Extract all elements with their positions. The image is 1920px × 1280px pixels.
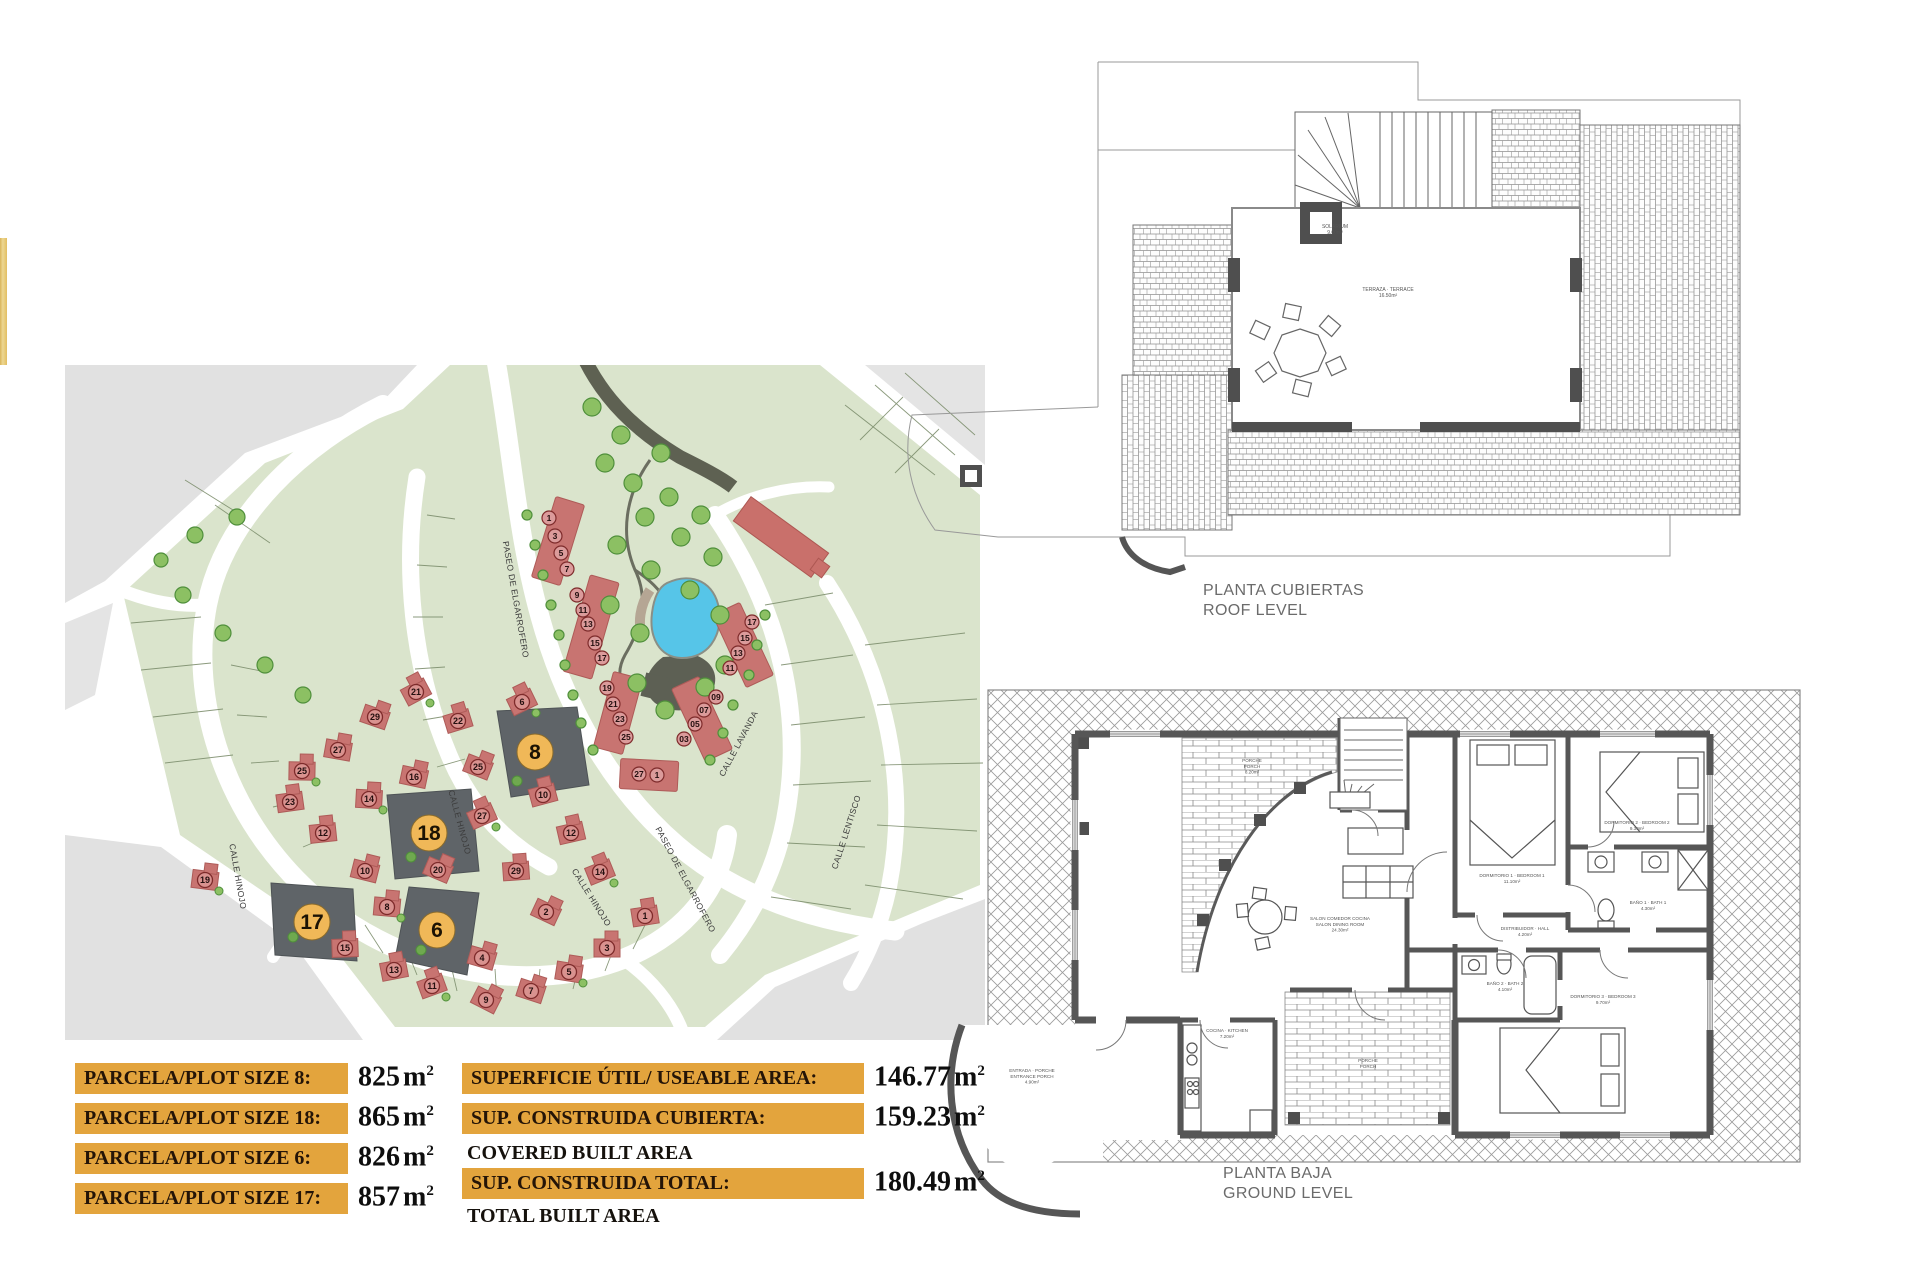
built-area-table: SUPERFICIE ÚTIL/ USEABLE AREA:146.77m2SU… xyxy=(462,1063,1022,1233)
plot-number: 12 xyxy=(566,828,576,838)
tree-icon xyxy=(492,823,500,831)
tree-icon xyxy=(705,755,715,765)
row-label: PARCELA/PLOT SIZE 6: xyxy=(84,1147,311,1170)
tree-icon xyxy=(692,506,710,524)
tree-icon xyxy=(522,510,532,520)
tree-icon xyxy=(560,660,570,670)
row-label-bar: PARCELA/PLOT SIZE 18: xyxy=(75,1103,348,1134)
tree-icon xyxy=(744,670,754,680)
tree-icon xyxy=(628,674,646,692)
tree-icon xyxy=(624,474,642,492)
unit-number: 05 xyxy=(690,719,700,729)
tree-icon xyxy=(718,728,728,738)
plot-number: 22 xyxy=(453,716,463,726)
tree-icon xyxy=(672,528,690,546)
tree-icon xyxy=(681,581,699,599)
tree-icon xyxy=(752,640,762,650)
row-value: 826m2 xyxy=(358,1141,434,1173)
tree-icon xyxy=(538,570,548,580)
tree-icon xyxy=(442,993,450,1001)
unit-number: 25 xyxy=(621,732,631,742)
plot-size-row: PARCELA/PLOT SIZE 17:857m2 xyxy=(75,1183,465,1214)
tree-icon xyxy=(608,536,626,554)
plot-number: 25 xyxy=(297,766,307,776)
area-row-subtitle: TOTAL BUILT AREA xyxy=(467,1205,660,1228)
tree-icon xyxy=(257,657,273,673)
tree-icon xyxy=(568,690,578,700)
tree-icon xyxy=(229,509,245,525)
unit-number: 13 xyxy=(583,619,593,629)
tree-icon xyxy=(554,630,564,640)
plot-number: 3 xyxy=(604,943,609,953)
plot-number: 27 xyxy=(333,745,343,755)
row-label-bar: SUPERFICIE ÚTIL/ USEABLE AREA: xyxy=(462,1063,864,1094)
plot-size-row: PARCELA/PLOT SIZE 8:825m2 xyxy=(75,1063,465,1094)
tree-icon xyxy=(295,687,311,703)
tree-icon xyxy=(397,914,405,922)
unit-number: 21 xyxy=(608,699,618,709)
roof-plan-title-es: PLANTA CUBIERTAS xyxy=(1203,581,1364,601)
plot-number: 29 xyxy=(511,866,521,876)
plot-number: 16 xyxy=(409,772,419,782)
highlighted-plot-number: 8 xyxy=(529,741,541,764)
plot-number: 27 xyxy=(477,811,487,821)
plot-number: 23 xyxy=(285,797,295,807)
tree-icon xyxy=(215,887,223,895)
tree-icon xyxy=(215,625,231,641)
tree-icon xyxy=(704,548,722,566)
tree-icon xyxy=(583,398,601,416)
roof-entrance-canopy xyxy=(1122,537,1185,572)
plot-number: 1 xyxy=(642,911,647,921)
tree-icon xyxy=(187,527,203,543)
unit-number: 3 xyxy=(553,531,558,541)
plan-sheet-page: 2129272523226251614121027201082912142419… xyxy=(0,0,1920,1280)
tree-icon xyxy=(636,508,654,526)
room-label: PORCHEPORCH xyxy=(1358,1058,1378,1069)
row-value: 159.23m2 xyxy=(874,1101,985,1133)
roof-plan-title-en: ROOF LEVEL xyxy=(1203,601,1364,621)
plot-size-row: PARCELA/PLOT SIZE 6:826m2 xyxy=(75,1143,465,1174)
tree-icon xyxy=(610,879,618,887)
unit-number: 11 xyxy=(579,605,588,615)
plot-number: 11 xyxy=(427,981,437,991)
plot-number: 12 xyxy=(318,828,328,838)
row-value: 865m2 xyxy=(358,1101,434,1133)
tree-icon xyxy=(631,624,649,642)
unit-number: 09 xyxy=(711,692,721,702)
row-value: 857m2 xyxy=(358,1181,434,1213)
row-label: PARCELA/PLOT SIZE 18: xyxy=(84,1107,321,1130)
row-label: PARCELA/PLOT SIZE 8: xyxy=(84,1067,311,1090)
plot-size-row: PARCELA/PLOT SIZE 18:865m2 xyxy=(75,1103,465,1134)
unit-number: 9 xyxy=(575,590,580,600)
tree-icon xyxy=(579,979,587,987)
tree-icon xyxy=(760,610,770,620)
tree-icon xyxy=(312,778,320,786)
plot-number: 14 xyxy=(595,867,605,877)
row-label-bar: PARCELA/PLOT SIZE 17: xyxy=(75,1183,348,1214)
unit-number: 17 xyxy=(597,653,607,663)
tree-icon xyxy=(612,426,630,444)
unit-number: 27 xyxy=(634,769,644,779)
unit-number: 7 xyxy=(565,564,570,574)
row-label-bar: PARCELA/PLOT SIZE 8: xyxy=(75,1063,348,1094)
unit-number: 03 xyxy=(679,734,689,744)
tree-icon xyxy=(728,700,738,710)
unit-number: 17 xyxy=(747,617,757,627)
unit-number: 1 xyxy=(655,770,660,780)
left-edge-accent xyxy=(0,238,7,365)
site-plan-map: 2129272523226251614121027201082912142419… xyxy=(65,365,985,1040)
roof-columns xyxy=(960,465,982,487)
row-value: 146.77m2 xyxy=(874,1061,985,1093)
ground-plan-title-es: PLANTA BAJA xyxy=(1223,1164,1353,1184)
ground-plan-title-en: GROUND LEVEL xyxy=(1223,1184,1353,1204)
tree-icon xyxy=(546,600,556,610)
plot-number: 20 xyxy=(433,865,443,875)
area-row: SUPERFICIE ÚTIL/ USEABLE AREA:146.77m2 xyxy=(462,1063,1022,1094)
ground-plan-drawing: PORCHEPORCH8.20m²SALON COMEDOR COCINASAL… xyxy=(900,680,1840,1220)
plot-number: 9 xyxy=(483,995,488,1005)
tree-icon xyxy=(711,606,729,624)
plot-number: 29 xyxy=(370,712,380,722)
room-label: PORCHEPORCH8.20m² xyxy=(1242,758,1262,775)
row-value: 180.49m2 xyxy=(874,1166,985,1198)
tree-icon xyxy=(660,488,678,506)
area-row: SUP. CONSTRUIDA TOTAL:180.49m2 xyxy=(462,1168,1022,1199)
row-label: SUPERFICIE ÚTIL/ USEABLE AREA: xyxy=(471,1067,817,1090)
tree-icon xyxy=(642,561,660,579)
tree-icon xyxy=(532,709,540,717)
plot-number: 4 xyxy=(479,953,484,963)
plot-number: 2 xyxy=(543,907,548,917)
unit-number: 19 xyxy=(602,683,612,693)
plot-number: 6 xyxy=(519,697,524,707)
plot-number: 21 xyxy=(411,687,421,697)
row-label: PARCELA/PLOT SIZE 17: xyxy=(84,1187,321,1210)
plot-number: 15 xyxy=(340,943,350,953)
tree-icon xyxy=(426,699,434,707)
tree-icon xyxy=(576,718,586,728)
plot-number: 13 xyxy=(389,965,399,975)
unit-number: 23 xyxy=(615,714,625,724)
highlighted-plot-number: 17 xyxy=(300,911,323,934)
unit-number: 15 xyxy=(590,638,600,648)
row-label: SUP. CONSTRUIDA CUBIERTA: xyxy=(471,1107,765,1130)
unit-number: 13 xyxy=(733,648,743,658)
row-label-bar: PARCELA/PLOT SIZE 6: xyxy=(75,1143,348,1174)
plot-number: 25 xyxy=(473,762,483,772)
unit-number: 15 xyxy=(740,633,750,643)
roof-plan-drawing: SOLARIUM9.00m²TERRAZA · TERRACE16.50m² xyxy=(880,25,1770,645)
plot-number: 5 xyxy=(566,967,571,977)
tree-icon xyxy=(154,553,168,567)
unit-number: 07 xyxy=(699,705,709,715)
plot-number: 10 xyxy=(360,866,370,876)
roof-stairs xyxy=(1295,112,1492,208)
plot-size-table: PARCELA/PLOT SIZE 8:825m2PARCELA/PLOT SI… xyxy=(75,1063,465,1223)
plot-number: 8 xyxy=(384,902,389,912)
plot-number: 10 xyxy=(538,790,548,800)
area-row-subtitle: COVERED BUILT AREA xyxy=(467,1142,693,1165)
unit-number: 5 xyxy=(559,548,564,558)
highlighted-plot-number: 18 xyxy=(417,822,441,845)
unit-number: 11 xyxy=(726,663,735,673)
row-label-bar: SUP. CONSTRUIDA TOTAL: xyxy=(462,1168,864,1199)
tree-icon xyxy=(601,596,619,614)
ground-plan-title: PLANTA BAJA GROUND LEVEL xyxy=(1223,1164,1353,1204)
area-row: SUP. CONSTRUIDA CUBIERTA:159.23m2 xyxy=(462,1103,1022,1134)
row-label-bar: SUP. CONSTRUIDA CUBIERTA: xyxy=(462,1103,864,1134)
tree-icon xyxy=(379,806,387,814)
plot-number: 14 xyxy=(364,794,374,804)
tree-icon xyxy=(596,454,614,472)
tree-icon xyxy=(656,701,674,719)
tree-icon xyxy=(588,745,598,755)
roof-plan-title: PLANTA CUBIERTAS ROOF LEVEL xyxy=(1203,581,1364,621)
highlighted-plot-number: 6 xyxy=(431,919,443,942)
row-value: 825m2 xyxy=(358,1061,434,1093)
tree-icon xyxy=(175,587,191,603)
plot-number: 19 xyxy=(200,875,210,885)
roof-terrace: SOLARIUM9.00m²TERRAZA · TERRACE16.50m² xyxy=(1228,202,1582,432)
tree-icon xyxy=(530,540,540,550)
plot-number: 7 xyxy=(528,986,533,996)
unit-number: 1 xyxy=(547,513,552,523)
tree-icon xyxy=(652,444,670,462)
row-label: SUP. CONSTRUIDA TOTAL: xyxy=(471,1172,730,1195)
